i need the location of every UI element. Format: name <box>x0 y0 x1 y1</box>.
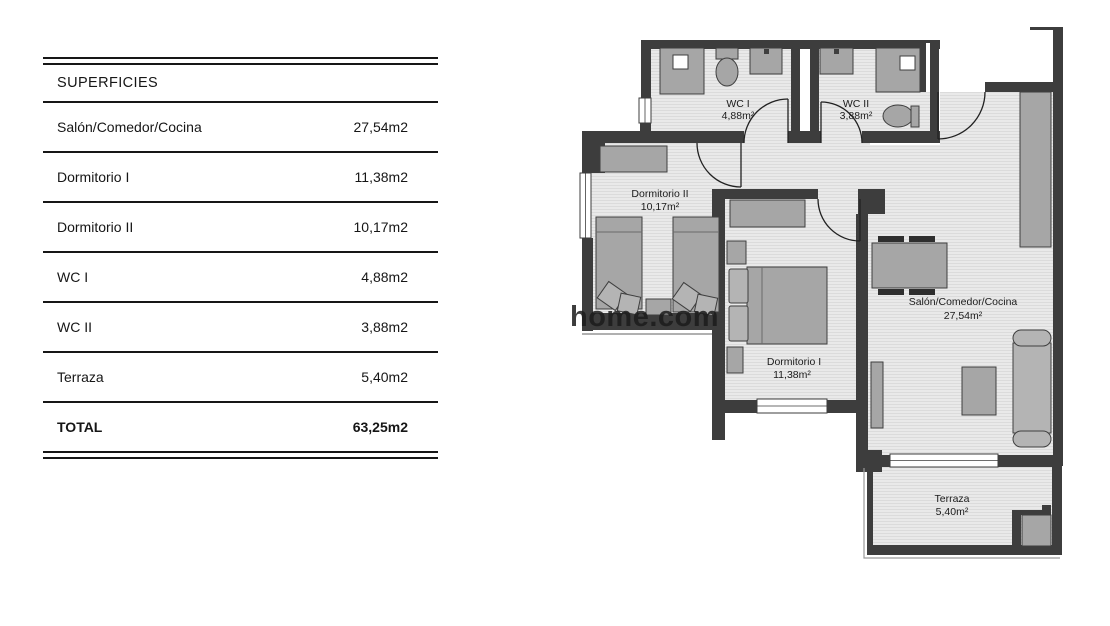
page: SUPERFICIES Salón/Comedor/Cocina 27,54m2… <box>0 0 1110 626</box>
bedside-table <box>727 347 743 373</box>
toilet-icon <box>716 48 738 59</box>
room-label-wc1: WC I <box>726 98 749 110</box>
floorplan: WC I 4,88m² WC II 3,88m² Dormitorio II 1… <box>0 0 1110 626</box>
toilet-icon <box>883 105 913 127</box>
chair <box>878 236 904 242</box>
shaft-void <box>800 40 810 143</box>
chair <box>878 289 904 295</box>
dining-table <box>872 243 947 288</box>
shower-head-icon <box>900 56 915 70</box>
room-area-dorm1: 11,38m² <box>773 369 811 381</box>
utility-box <box>1022 515 1051 546</box>
bedside-table <box>727 241 746 264</box>
room-area-wc1: 4,88m² <box>722 110 755 122</box>
chair <box>909 236 935 242</box>
chair <box>909 289 935 295</box>
room-label-dorm2: Dormitorio II <box>631 188 688 200</box>
sofa <box>1013 343 1051 433</box>
room-area-wc2: 3,88m² <box>840 110 873 122</box>
wardrobe <box>600 146 667 172</box>
room-area-salon: 27,54m² <box>944 310 983 322</box>
room-label-wc2: WC II <box>843 98 869 110</box>
coffee-table <box>962 367 996 415</box>
room-area-terraza: 5,40m² <box>936 506 969 518</box>
pillow <box>729 306 748 341</box>
shower-head-icon <box>673 55 688 69</box>
room-area-dorm2: 10,17m² <box>641 201 680 213</box>
wardrobe <box>730 200 805 227</box>
room-label-dorm1: Dormitorio I <box>767 356 821 368</box>
watermark: home.com <box>570 301 719 333</box>
bed <box>747 267 827 344</box>
pillow <box>729 269 748 303</box>
tv-unit <box>871 362 883 428</box>
room-label-terraza: Terraza <box>934 493 969 505</box>
room-label-salon: Salón/Comedor/Cocina <box>909 296 1018 308</box>
kitchen-counter <box>1020 92 1051 247</box>
